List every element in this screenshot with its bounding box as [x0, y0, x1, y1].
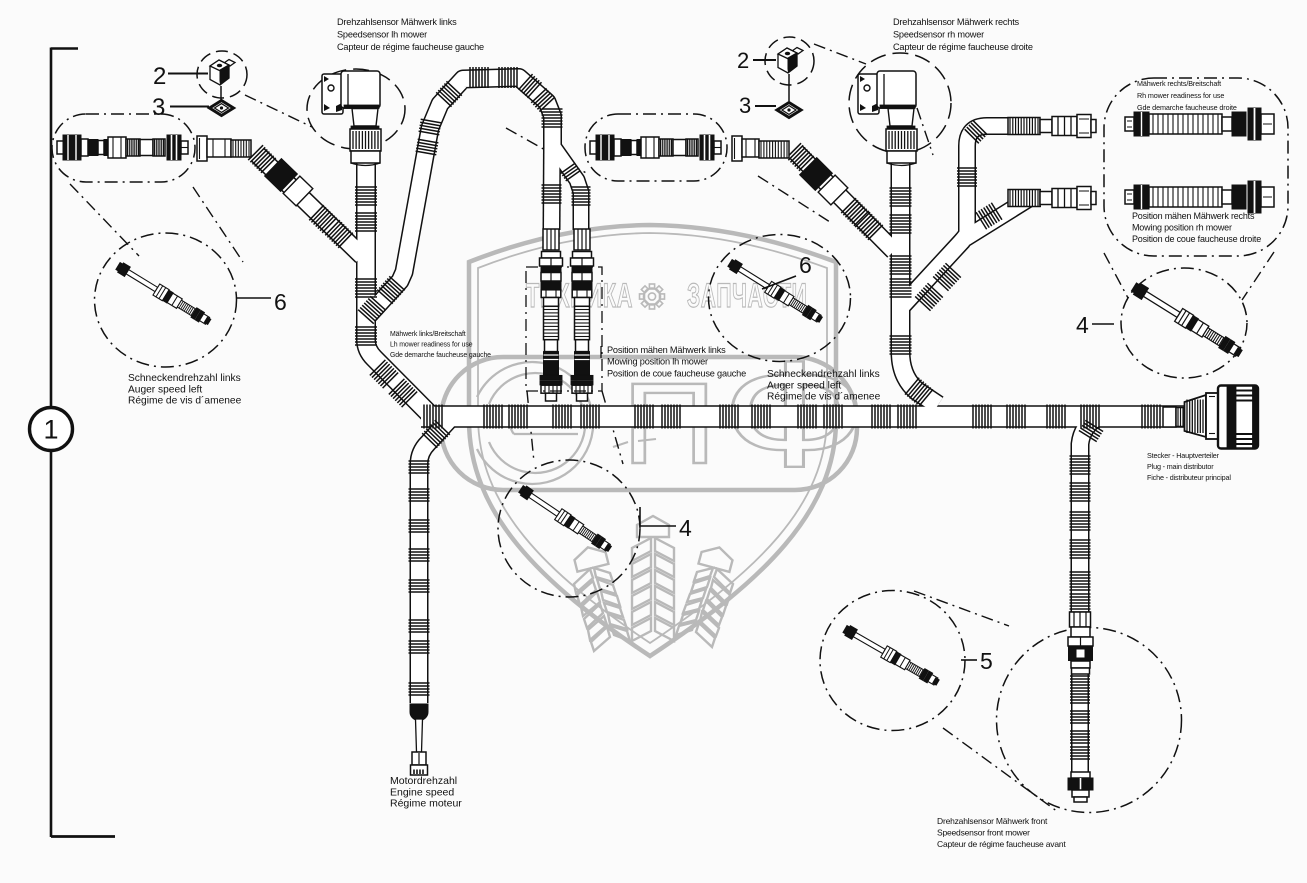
svg-text:Mowing position lh mower: Mowing position lh mower: [607, 357, 708, 367]
svg-text:2: 2: [153, 63, 166, 90]
svg-text:Motordrehzahl: Motordrehzahl: [390, 775, 457, 787]
svg-text:Position de coue faucheuse dro: Position de coue faucheuse droite: [1132, 234, 1261, 244]
svg-text:4: 4: [679, 515, 692, 541]
svg-text:Rh mower readiness for use: Rh mower readiness for use: [1137, 91, 1224, 100]
svg-text:Capteur de régime faucheuse av: Capteur de régime faucheuse avant: [937, 839, 1066, 849]
svg-text:Lh mower readiness for use: Lh mower readiness for use: [390, 342, 473, 349]
svg-text:Drehzahlsensor Mähwerk front: Drehzahlsensor Mähwerk front: [937, 816, 1048, 826]
svg-text:Position mähen Mähwerk links: Position mähen Mähwerk links: [607, 345, 726, 355]
svg-text:Régime moteur: Régime moteur: [390, 798, 462, 810]
svg-text:Régime de vis d´amenee: Régime de vis d´amenee: [128, 395, 242, 407]
svg-text:Speedsensor lh mower: Speedsensor lh mower: [337, 30, 427, 40]
svg-text:Speedsensor front mower: Speedsensor front mower: [937, 828, 1030, 838]
svg-text:Mowing position rh mower: Mowing position rh mower: [1132, 223, 1232, 233]
svg-text:Fiche - distributeur principal: Fiche - distributeur principal: [1147, 473, 1231, 482]
svg-text:6: 6: [274, 289, 287, 315]
svg-text:Drehzahlsensor Mähwerk links: Drehzahlsensor Mähwerk links: [337, 17, 457, 27]
svg-text:3: 3: [739, 93, 751, 118]
svg-text:Auger speed left: Auger speed left: [128, 384, 202, 395]
svg-text:Position de coue faucheuse gau: Position de coue faucheuse gauche: [607, 368, 746, 378]
svg-text:Stecker - Hauptverteiler: Stecker - Hauptverteiler: [1147, 451, 1220, 460]
svg-text:Capteur de régime faucheuse dr: Capteur de régime faucheuse droite: [893, 42, 1033, 52]
svg-text:Auger speed left: Auger speed left: [767, 380, 841, 391]
svg-text:Schneckendrehzahl links: Schneckendrehzahl links: [767, 369, 880, 380]
svg-text:Mähwerk rechts/Breitschaft: Mähwerk rechts/Breitschaft: [1137, 79, 1221, 88]
svg-text:6: 6: [799, 252, 812, 278]
svg-text:Plug - main distributor: Plug - main distributor: [1147, 462, 1214, 471]
svg-text:Speedsensor rh mower: Speedsensor rh mower: [893, 30, 984, 40]
svg-text:Gde demarche faucheuse droite: Gde demarche faucheuse droite: [1137, 103, 1237, 112]
svg-text:Drehzahlsensor Mähwerk rechts: Drehzahlsensor Mähwerk rechts: [893, 17, 1020, 27]
svg-text:Schneckendrehzahl links: Schneckendrehzahl links: [128, 373, 241, 384]
svg-text:3: 3: [152, 94, 165, 121]
svg-text:4: 4: [1076, 312, 1089, 338]
svg-text:Position mähen Mähwerk rechts: Position mähen Mähwerk rechts: [1132, 211, 1255, 221]
svg-text:Mähwerk links/Breitschaft: Mähwerk links/Breitschaft: [390, 331, 466, 338]
svg-text:Régime de vis d´amenee: Régime de vis d´amenee: [767, 391, 881, 403]
svg-text:Engine speed: Engine speed: [390, 786, 454, 798]
svg-text:2: 2: [737, 48, 749, 73]
svg-text:1: 1: [43, 415, 58, 445]
svg-text:Capteur de régime faucheuse ga: Capteur de régime faucheuse gauche: [337, 42, 484, 52]
svg-text:5: 5: [980, 648, 993, 674]
svg-text:Gde demarche faucheuse gauche: Gde demarche faucheuse gauche: [390, 352, 491, 359]
